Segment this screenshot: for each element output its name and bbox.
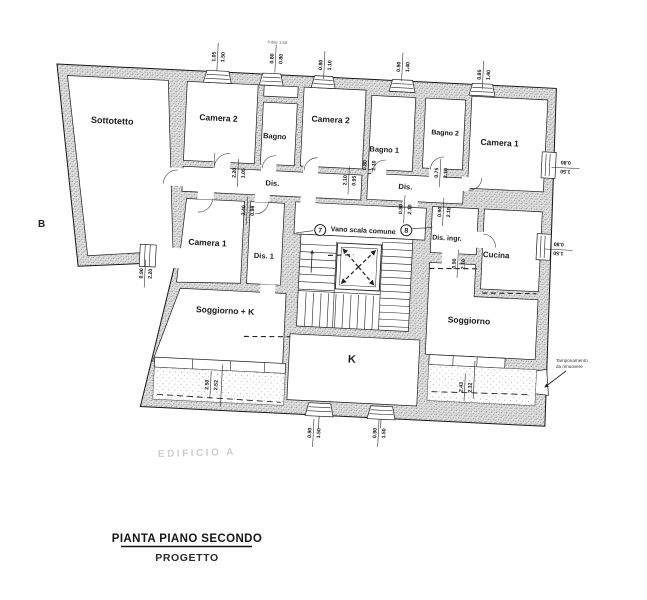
svg-text:1.50: 1.50 xyxy=(381,428,387,438)
unit-7-number: 7 xyxy=(318,227,322,234)
drawing-title: PIANTA PIANO SECONDO xyxy=(112,533,262,545)
svg-text:1.10: 1.10 xyxy=(327,60,333,70)
svg-text:2.52: 2.52 xyxy=(213,380,219,390)
svg-text:2.50: 2.50 xyxy=(204,379,210,389)
svg-text:1.40: 1.40 xyxy=(486,70,492,80)
svg-text:1.05: 1.05 xyxy=(211,51,217,61)
watermark-text: EDIFICIO A xyxy=(158,447,236,460)
svg-text:2.40: 2.40 xyxy=(241,205,247,215)
svg-text:0.90: 0.90 xyxy=(451,258,457,268)
room-camera2-right-floor xyxy=(300,87,366,169)
svg-text:0.80: 0.80 xyxy=(362,160,368,170)
room-label-bagno-2: Bagno 2 xyxy=(431,129,459,137)
balcony xyxy=(139,244,156,267)
room-label-sottotetto: Sottotetto xyxy=(91,115,134,127)
room-label-bagno-1: Bagno 1 xyxy=(369,144,399,154)
dimension-label: 0.801.10 xyxy=(318,51,334,80)
annotation-line1: Tamponamento xyxy=(556,358,588,363)
svg-text:2.20: 2.20 xyxy=(148,269,154,279)
room-label-cucina: Cucina xyxy=(483,250,511,260)
svg-text:0.80: 0.80 xyxy=(318,60,324,70)
room-k-floor xyxy=(287,334,420,406)
svg-text:0.80: 0.80 xyxy=(554,240,564,246)
svg-text:2.10: 2.10 xyxy=(371,160,377,170)
window-note: h dav 1.50 xyxy=(267,39,287,45)
svg-text:2.20: 2.20 xyxy=(232,168,238,178)
svg-text:2.10: 2.10 xyxy=(443,168,449,178)
elevator-shaft xyxy=(335,243,381,291)
unit-8-number: 8 xyxy=(404,228,408,235)
room-label-bagno: Bagno xyxy=(263,131,287,141)
leader-annotation: Tamponamento da rimuovere xyxy=(545,358,588,387)
dimension-label: 1.051.50 xyxy=(211,43,227,72)
svg-text:1.05: 1.05 xyxy=(241,168,247,178)
svg-text:0.95: 0.95 xyxy=(351,175,357,185)
svg-text:0.80: 0.80 xyxy=(269,53,275,63)
room-label-dis-center: Dis. xyxy=(398,182,412,192)
room-label-k: K xyxy=(348,354,357,366)
svg-text:2.32: 2.32 xyxy=(467,382,473,392)
svg-text:2.10: 2.10 xyxy=(342,175,348,185)
svg-text:0.80: 0.80 xyxy=(278,54,284,64)
dimension-label: 0.901.40 xyxy=(396,53,412,82)
room-bagno1-floor xyxy=(368,95,416,171)
svg-text:0.90: 0.90 xyxy=(437,207,443,217)
svg-text:2.43: 2.43 xyxy=(458,382,464,392)
title-block: PIANTA PIANO SECONDO PROGETTO xyxy=(112,533,262,564)
svg-text:0.90: 0.90 xyxy=(139,268,145,278)
room-label-dis-1: Dis. 1 xyxy=(254,251,274,261)
section-letter: B xyxy=(38,219,45,230)
svg-text:0.90: 0.90 xyxy=(307,428,313,438)
room-label-camera1-right: Camera 1 xyxy=(480,137,519,149)
svg-text:0.98: 0.98 xyxy=(250,205,256,215)
drawing-sheet: 7 8 Vano scala comune h dav 1.50 Sottote… xyxy=(0,0,647,600)
closet-floor xyxy=(264,85,298,98)
room-label-camera2-right: Camera 2 xyxy=(311,114,350,126)
svg-text:0.80: 0.80 xyxy=(561,159,571,165)
annotation-line2: da rimuovere xyxy=(556,364,583,369)
room-label-dis-ingresso: Dis. ingr. xyxy=(432,235,462,243)
svg-text:2.10: 2.10 xyxy=(407,204,413,214)
dimension-label: 0.901.50 xyxy=(307,419,323,448)
floor-plan: 7 8 Vano scala comune h dav 1.50 Sottote… xyxy=(39,29,585,459)
room-label-soggiorno: Soggiorno xyxy=(447,314,490,326)
svg-text:0.85: 0.85 xyxy=(477,69,483,79)
dimension-label: 0.901.50 xyxy=(372,419,388,448)
corridor-right-floor xyxy=(367,173,464,204)
svg-text:1.50: 1.50 xyxy=(220,52,226,62)
svg-text:2.10: 2.10 xyxy=(460,259,466,269)
room-label-camera2-left: Camera 2 xyxy=(199,112,238,124)
svg-text:1.50: 1.50 xyxy=(553,249,563,255)
svg-text:0.90: 0.90 xyxy=(372,428,378,438)
floor-plan-drawing: 7 8 Vano scala comune h dav 1.50 Sottote… xyxy=(0,0,647,600)
svg-text:2.10: 2.10 xyxy=(446,207,452,217)
dimension-label: 0.800.80 xyxy=(269,44,285,73)
room-label-dis-left: Dis. xyxy=(265,178,279,188)
svg-text:0.90: 0.90 xyxy=(396,61,402,71)
svg-text:0.75: 0.75 xyxy=(434,167,440,177)
svg-text:1.40: 1.40 xyxy=(405,62,411,72)
svg-text:1.50: 1.50 xyxy=(560,168,570,174)
drawing-subtitle: PROGETTO xyxy=(155,552,219,564)
svg-text:1.50: 1.50 xyxy=(316,428,322,438)
room-label-camera1-left: Camera 1 xyxy=(188,237,227,249)
svg-text:0.80: 0.80 xyxy=(398,204,404,214)
